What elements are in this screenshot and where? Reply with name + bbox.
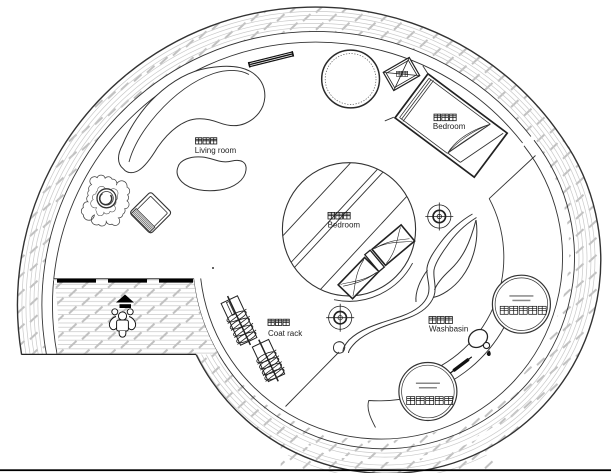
- svg-text:Coat rack: Coat rack: [268, 329, 303, 338]
- svg-text:Bedroom: Bedroom: [328, 221, 361, 230]
- svg-text:Bedroom: Bedroom: [433, 122, 466, 131]
- svg-text:Living room: Living room: [195, 146, 237, 155]
- svg-text:Washbasin: Washbasin: [429, 325, 468, 334]
